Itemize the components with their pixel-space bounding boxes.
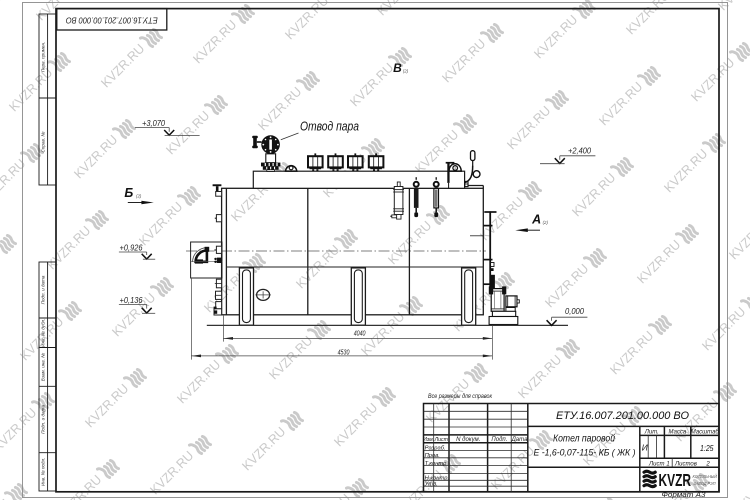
svg-text:Взам. инв. №: Взам. инв. № bbox=[41, 353, 46, 381]
svg-text:Б: Б bbox=[124, 186, 133, 200]
svg-text:Инв. № дубл.: Инв. № дубл. bbox=[41, 319, 46, 347]
svg-text:Все размеры для справок: Все размеры для справок bbox=[428, 392, 493, 400]
svg-text:Подп. и дата: Подп. и дата bbox=[41, 275, 46, 304]
svg-text:+0,136: +0,136 bbox=[120, 295, 143, 305]
svg-text:А: А bbox=[531, 213, 541, 227]
svg-text:+2,400: +2,400 bbox=[568, 145, 591, 155]
svg-text:Лист: Лист bbox=[648, 462, 664, 468]
svg-text:Лист: Лист bbox=[434, 437, 449, 443]
svg-text:Дата: Дата bbox=[511, 437, 528, 443]
svg-text:Отвод пара: Отвод пара bbox=[300, 120, 359, 134]
svg-text:Утв.: Утв. bbox=[424, 482, 438, 488]
svg-text:Е -1,6-0,07-115- КБ ( ЖК ): Е -1,6-0,07-115- КБ ( ЖК ) bbox=[534, 448, 636, 458]
svg-text:4530: 4530 bbox=[338, 348, 350, 357]
svg-text:+0,926: +0,926 bbox=[120, 243, 143, 253]
svg-text:И: И bbox=[642, 442, 648, 452]
svg-text:2: 2 bbox=[705, 462, 710, 468]
svg-text:Т.контр.: Т.контр. bbox=[425, 461, 448, 467]
svg-text:Подп. и дата: Подп. и дата bbox=[41, 405, 46, 434]
svg-text:В: В bbox=[393, 61, 402, 75]
svg-text:Формат А3: Формат А3 bbox=[662, 490, 706, 499]
svg-text:КОТЕЛЬНЫЙ: КОТЕЛЬНЫЙ bbox=[693, 472, 718, 480]
svg-text:0,000: 0,000 bbox=[565, 306, 584, 316]
svg-text:ЕТУ.16.007.201.00.000 ВО: ЕТУ.16.007.201.00.000 ВО bbox=[556, 410, 689, 422]
svg-text:Масштаб: Масштаб bbox=[691, 429, 720, 435]
svg-text:Пров.: Пров. bbox=[425, 453, 440, 459]
svg-text:N докум.: N докум. bbox=[456, 437, 480, 443]
svg-text:Перв. примен.: Перв. примен. bbox=[41, 42, 46, 73]
svg-text:KVZR: KVZR bbox=[659, 470, 692, 490]
svg-text:+3,070: +3,070 bbox=[142, 118, 165, 128]
svg-text:(2): (2) bbox=[136, 194, 142, 199]
svg-text:1:25: 1:25 bbox=[700, 443, 714, 453]
svg-text:ЕТУ.16.007.201.00.000 ВО: ЕТУ.16.007.201.00.000 ВО bbox=[65, 15, 158, 24]
svg-text:1: 1 bbox=[666, 462, 669, 468]
svg-text:Подп.: Подп. bbox=[491, 437, 507, 443]
svg-text:(2): (2) bbox=[543, 220, 549, 225]
svg-text:Лит.: Лит. bbox=[644, 429, 659, 435]
svg-text:Н.контр.: Н.контр. bbox=[425, 476, 450, 482]
svg-text:Инв. № подл.: Инв. № подл. bbox=[41, 458, 46, 487]
svg-text:4040: 4040 bbox=[354, 329, 366, 338]
svg-text:ЗАВОД РЭП: ЗАВОД РЭП bbox=[694, 481, 716, 487]
svg-text:Разраб.: Разраб. bbox=[425, 446, 446, 452]
svg-text:Котел паровой: Котел паровой bbox=[553, 434, 615, 445]
svg-text:Масса: Масса bbox=[669, 429, 687, 435]
svg-text:(2): (2) bbox=[403, 69, 409, 74]
svg-text:Справ. №: Справ. № bbox=[41, 132, 46, 153]
svg-text:Листов: Листов bbox=[674, 462, 697, 468]
svg-text:Изм.: Изм. bbox=[423, 437, 434, 443]
